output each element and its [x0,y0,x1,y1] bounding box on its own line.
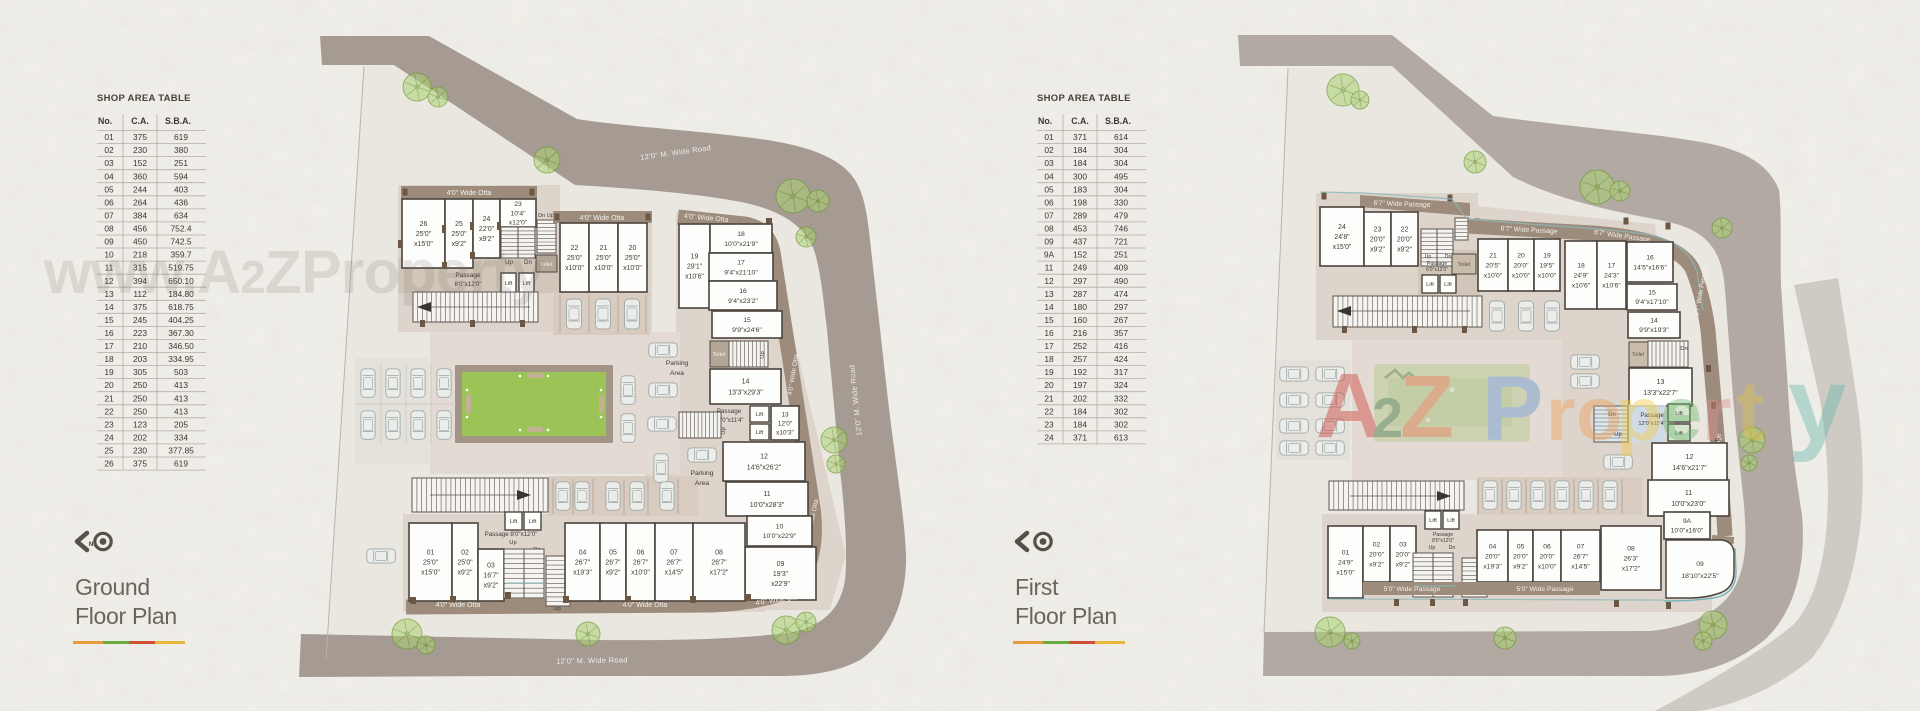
svg-text:t: t [1736,364,1764,458]
svg-text:2: 2 [1372,386,1403,449]
svg-text:r: r [1546,372,1576,457]
svg-text:p: p [1616,372,1662,457]
svg-text:P: P [1482,358,1543,460]
svg-text:e: e [1660,372,1702,457]
svg-text:y: y [1788,346,1846,463]
svg-text:Z: Z [1400,357,1454,456]
svg-text:r: r [1702,372,1732,457]
